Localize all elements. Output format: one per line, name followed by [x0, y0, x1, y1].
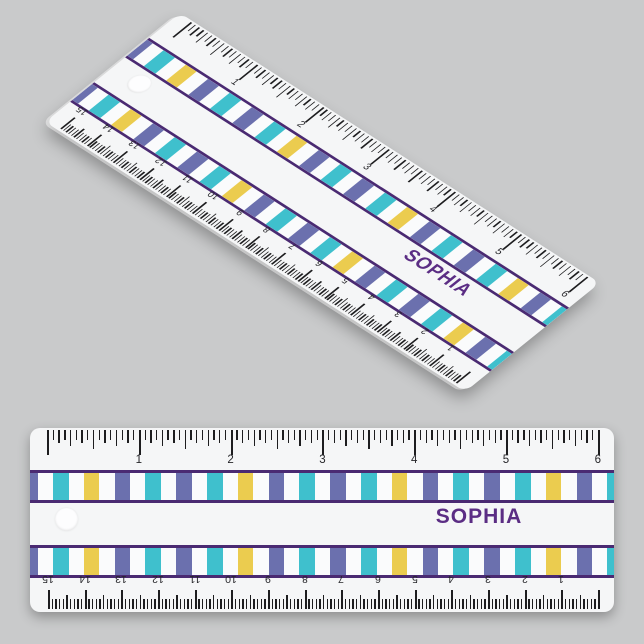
inch-scale: 123456 [30, 428, 614, 474]
cm-number: 10 [221, 573, 241, 585]
inch-tick [586, 430, 587, 443]
inch-tick [133, 430, 134, 440]
cm-tick [202, 599, 203, 609]
cm-tick [85, 590, 87, 609]
stripe-teal [145, 473, 161, 500]
cm-number: 11 [185, 573, 205, 585]
inch-tick [225, 430, 226, 440]
inch-tick [414, 430, 416, 455]
cm-tick [407, 599, 408, 609]
stripe-yellow [498, 278, 529, 301]
inch-tick [569, 430, 570, 440]
cm-tick [103, 595, 104, 609]
hang-hole [122, 71, 155, 95]
inch-tick [345, 430, 346, 446]
inch-tick [483, 430, 484, 446]
cm-tick [77, 599, 78, 609]
inch-tick [53, 430, 54, 440]
inch-tick [242, 430, 243, 443]
cm-tick [206, 599, 207, 609]
cm-tick [561, 590, 563, 609]
inch-tick [380, 430, 381, 443]
inch-tick [167, 430, 168, 440]
cm-tick [286, 595, 287, 609]
inch-tick [598, 430, 600, 455]
cm-tick [143, 599, 144, 609]
stripe-teal [542, 306, 569, 327]
cm-tick [330, 599, 331, 609]
inch-tick [460, 430, 461, 449]
inch-tick [70, 430, 71, 446]
inch-tick [477, 430, 478, 440]
cm-tick [437, 599, 438, 609]
cm-tick [66, 595, 67, 609]
cm-number: 9 [258, 573, 278, 585]
stripe-slate [577, 473, 593, 500]
inch-tick [282, 430, 283, 440]
inch-tick [374, 430, 375, 440]
cm-tick [338, 599, 339, 609]
cm-tick [415, 590, 417, 609]
cm-tick [327, 599, 328, 609]
cm-tick [543, 595, 544, 609]
stripe-slate [410, 221, 441, 244]
cm-tick [151, 599, 152, 609]
hang-hole [55, 508, 78, 531]
stripe-slate [30, 473, 38, 500]
stripe-teal [515, 473, 531, 500]
cm-scale: 151413121110987654321 [30, 566, 614, 612]
cm-tick [110, 599, 111, 609]
cm-tick [532, 599, 533, 609]
cm-tick [187, 599, 188, 609]
cm-tick [591, 599, 592, 609]
cm-tick [539, 599, 540, 609]
cm-number: 15 [38, 573, 58, 585]
cm-tick [583, 599, 584, 609]
cm-number: 1 [551, 573, 571, 585]
inch-tick [64, 430, 65, 440]
inch-tick [173, 430, 174, 443]
cm-tick [396, 595, 397, 609]
inch-tick [208, 430, 209, 446]
cm-tick [165, 599, 166, 609]
cm-tick [158, 590, 160, 609]
cm-tick [352, 599, 353, 609]
personalized-name: SOPHIA [436, 505, 523, 529]
cm-number: 12 [148, 573, 168, 585]
cm-tick [455, 599, 456, 609]
inch-tick [420, 430, 421, 440]
stripe-slate [269, 473, 285, 500]
inch-tick [472, 430, 473, 443]
cm-tick [268, 590, 270, 609]
inch-tick [104, 430, 105, 443]
inch-tick [190, 430, 191, 440]
cm-tick [389, 599, 390, 609]
cm-tick [341, 590, 343, 609]
inch-tick [437, 430, 438, 446]
cm-tick [594, 599, 595, 609]
inch-tick [334, 430, 335, 443]
inch-tick [265, 430, 266, 443]
stripe-teal [365, 193, 396, 216]
inch-tick [162, 430, 163, 446]
inch-tick [81, 430, 82, 443]
inch-tick [328, 430, 329, 440]
cm-tick [52, 599, 53, 609]
cm-tick [253, 599, 254, 609]
stripe-teal [207, 473, 223, 500]
cm-tick [422, 599, 423, 609]
cm-tick [231, 590, 233, 609]
inch-tick [443, 430, 444, 440]
cm-tick [297, 599, 298, 609]
cm-tick [514, 599, 515, 609]
inch-tick [340, 430, 341, 440]
cm-tick [462, 599, 463, 609]
cm-tick [129, 599, 130, 609]
inch-tick [299, 430, 300, 446]
cm-tick [176, 595, 177, 609]
inch-tick [248, 430, 249, 440]
inch-tick [517, 430, 518, 443]
cm-tick [305, 590, 307, 609]
cm-tick [209, 599, 210, 609]
inch-tick [127, 430, 128, 443]
cm-tick [521, 599, 522, 609]
cm-tick [536, 599, 537, 609]
cm-tick [99, 599, 100, 609]
cm-number: 13 [111, 573, 131, 585]
stripe-teal [53, 473, 69, 500]
cm-tick [88, 599, 89, 609]
inch-tick [185, 430, 186, 449]
cm-tick [261, 599, 262, 609]
cm-tick [74, 599, 75, 609]
cm-tick [374, 599, 375, 609]
inch-tick [76, 430, 77, 440]
cm-tick [484, 599, 485, 609]
stripe-slate [454, 250, 485, 273]
cm-tick [250, 595, 251, 609]
cm-tick [290, 599, 291, 609]
inch-tick [93, 430, 94, 449]
inch-tick [196, 430, 197, 443]
cm-tick [308, 599, 309, 609]
cm-tick [569, 599, 570, 609]
cm-tick [576, 599, 577, 609]
cm-tick [136, 599, 137, 609]
inch-tick [449, 430, 450, 443]
stripe-teal [210, 93, 241, 116]
cm-tick [275, 599, 276, 609]
cm-tick [404, 599, 405, 609]
cm-tick [433, 595, 434, 609]
cm-tick [334, 599, 335, 609]
cm-tick [572, 599, 573, 609]
stripe-slate [343, 178, 374, 201]
inch-tick [386, 430, 387, 440]
inch-tick [523, 430, 524, 440]
inch-tick [122, 430, 123, 440]
inch-tick [288, 430, 289, 443]
inch-tick [47, 430, 49, 455]
cm-tick [191, 599, 192, 609]
cm-tick [316, 599, 317, 609]
cm-tick [224, 599, 225, 609]
cm-tick [459, 599, 460, 609]
stripe-teal [432, 235, 463, 258]
inch-tick [397, 430, 398, 440]
cm-tick [114, 599, 115, 609]
cm-number: 8 [295, 573, 315, 585]
cm-tick [477, 599, 478, 609]
cm-tick [510, 599, 511, 609]
cm-tick [125, 599, 126, 609]
cm-tick [503, 599, 504, 609]
cm-tick [48, 590, 50, 609]
cm-tick [345, 599, 346, 609]
cm-tick [140, 595, 141, 609]
stripe-slate [188, 79, 219, 102]
cm-tick [440, 599, 441, 609]
cm-tick [217, 599, 218, 609]
stripe-slate [520, 292, 551, 315]
cm-tick [242, 599, 243, 609]
cm-tick [554, 599, 555, 609]
cm-tick [470, 595, 471, 609]
cm-tick [264, 599, 265, 609]
cm-tick [154, 599, 155, 609]
inch-tick [311, 430, 312, 443]
cm-tick [195, 590, 197, 609]
cm-tick [81, 599, 82, 609]
cm-tick [107, 599, 108, 609]
inch-tick [500, 430, 501, 440]
inch-tick [546, 430, 547, 440]
inch-tick [116, 430, 117, 446]
cm-tick [473, 599, 474, 609]
stripe-slate [232, 107, 263, 130]
inch-number: 2 [221, 454, 241, 466]
inch-tick [495, 430, 496, 443]
stripe-slate [176, 473, 192, 500]
inch-number: 5 [496, 454, 516, 466]
cm-tick [184, 599, 185, 609]
inch-tick [535, 430, 536, 440]
inch-tick [277, 430, 278, 449]
cm-tick [448, 599, 449, 609]
cm-tick [466, 599, 467, 609]
cm-tick [96, 599, 97, 609]
cm-tick [587, 599, 588, 609]
inch-tick [431, 430, 432, 440]
cm-number: 6 [368, 573, 388, 585]
cm-tick [121, 590, 123, 609]
inch-tick [408, 430, 409, 440]
cm-tick [506, 595, 507, 609]
inch-tick [368, 430, 369, 449]
inch-tick [391, 430, 392, 446]
inch-tick [592, 430, 593, 440]
inch-tick [271, 430, 272, 440]
ruler-front-view: 123456 SOPHIA 151413121110987654321 [30, 428, 614, 612]
cm-tick [301, 599, 302, 609]
inch-tick [322, 430, 324, 455]
cm-tick [371, 599, 372, 609]
cm-tick [565, 599, 566, 609]
cm-tick [400, 599, 401, 609]
stripe-slate [423, 473, 439, 500]
inch-tick [150, 430, 151, 443]
cm-tick [525, 590, 527, 609]
inch-tick [317, 430, 318, 440]
cm-tick [239, 599, 240, 609]
cm-tick [349, 599, 350, 609]
inch-tick [575, 430, 576, 446]
cm-tick [132, 599, 133, 609]
inch-tick [426, 430, 427, 443]
cm-tick [60, 117, 75, 129]
cm-tick [220, 599, 221, 609]
inch-tick [202, 430, 203, 440]
inch-tick [179, 430, 180, 440]
inch-number: 4 [404, 454, 424, 466]
cm-tick [367, 599, 368, 609]
cm-tick [382, 599, 383, 609]
cm-tick [580, 595, 581, 609]
inch-tick [568, 277, 588, 293]
cm-tick [378, 590, 380, 609]
cm-tick [92, 599, 93, 609]
stripe-yellow [166, 65, 197, 88]
inch-tick [145, 430, 146, 440]
stripe-yellow [392, 473, 408, 500]
cm-tick [294, 599, 295, 609]
inch-tick [254, 430, 255, 446]
cm-tick [323, 595, 324, 609]
inch-tick [506, 430, 508, 455]
cm-tick [385, 599, 386, 609]
inch-tick [305, 430, 306, 440]
cm-tick [272, 599, 273, 609]
cm-tick [451, 590, 453, 609]
stripe-slate [330, 473, 346, 500]
cm-tick [279, 599, 280, 609]
cm-tick [528, 599, 529, 609]
inch-tick [466, 430, 467, 440]
cm-tick [411, 599, 412, 609]
cm-tick [550, 599, 551, 609]
cm-tick [173, 599, 174, 609]
stripe-teal [255, 121, 286, 144]
cm-number: 14 [75, 573, 95, 585]
stripe-teal [321, 164, 352, 187]
cm-number: 7 [331, 573, 351, 585]
cm-tick [356, 599, 357, 609]
stripe-slate [299, 150, 330, 173]
stripe-slate [484, 473, 500, 500]
stripe-teal [144, 50, 175, 73]
cm-tick [488, 590, 490, 609]
cm-tick [228, 599, 229, 609]
inch-tick [58, 430, 59, 443]
cm-tick [426, 599, 427, 609]
inch-tick [529, 430, 530, 446]
inch-tick [294, 430, 295, 440]
inch-tick [87, 430, 88, 440]
inch-tick [489, 430, 490, 440]
stripe-slate [115, 473, 131, 500]
inch-tick [219, 430, 220, 443]
cm-number: 3 [478, 573, 498, 585]
product-mockup: 123456 SOPHIA 151413121110987654321 1234… [0, 0, 644, 644]
inch-tick [363, 430, 364, 440]
cm-tick [63, 599, 64, 609]
cm-tick [444, 599, 445, 609]
cm-tick [59, 599, 60, 609]
inch-tick [213, 430, 214, 440]
cm-tick [517, 599, 518, 609]
cm-tick [118, 599, 119, 609]
cm-tick [312, 599, 313, 609]
stripe-teal [476, 264, 507, 287]
cm-tick [547, 599, 548, 609]
inch-tick [231, 430, 233, 455]
stripe-yellow [387, 207, 418, 230]
stripe-yellow [546, 473, 562, 500]
cm-tick [162, 599, 163, 609]
inch-tick [563, 430, 564, 443]
cm-tick [319, 599, 320, 609]
cm-number: 2 [515, 573, 535, 585]
stripe-teal [361, 473, 377, 500]
cm-tick [495, 599, 496, 609]
inch-tick [110, 430, 111, 440]
inch-tick [351, 430, 352, 440]
cm-number: 5 [405, 573, 425, 585]
inch-tick [259, 430, 260, 440]
inch-tick [552, 430, 553, 449]
inch-tick [454, 430, 455, 440]
cm-tick [429, 599, 430, 609]
cm-tick [418, 599, 419, 609]
stripe-yellow [238, 473, 254, 500]
cm-tick [481, 599, 482, 609]
stripe-slate [125, 38, 153, 59]
cm-tick [55, 599, 56, 609]
stripe-teal [453, 473, 469, 500]
cm-tick [169, 599, 170, 609]
cm-tick [558, 599, 559, 609]
stripe-band-top [30, 470, 614, 503]
cm-tick [235, 599, 236, 609]
cm-tick [198, 599, 199, 609]
inch-number: 1 [129, 454, 149, 466]
cm-tick [246, 599, 247, 609]
stripe-yellow [277, 136, 308, 159]
cm-tick [180, 599, 181, 609]
cm-tick [393, 599, 394, 609]
stripe-teal [299, 473, 315, 500]
inch-tick [581, 430, 582, 440]
inch-tick [99, 430, 100, 440]
cm-tick [257, 599, 258, 609]
cm-tick [283, 599, 284, 609]
cm-tick [363, 599, 364, 609]
stripe-teal [607, 473, 614, 500]
